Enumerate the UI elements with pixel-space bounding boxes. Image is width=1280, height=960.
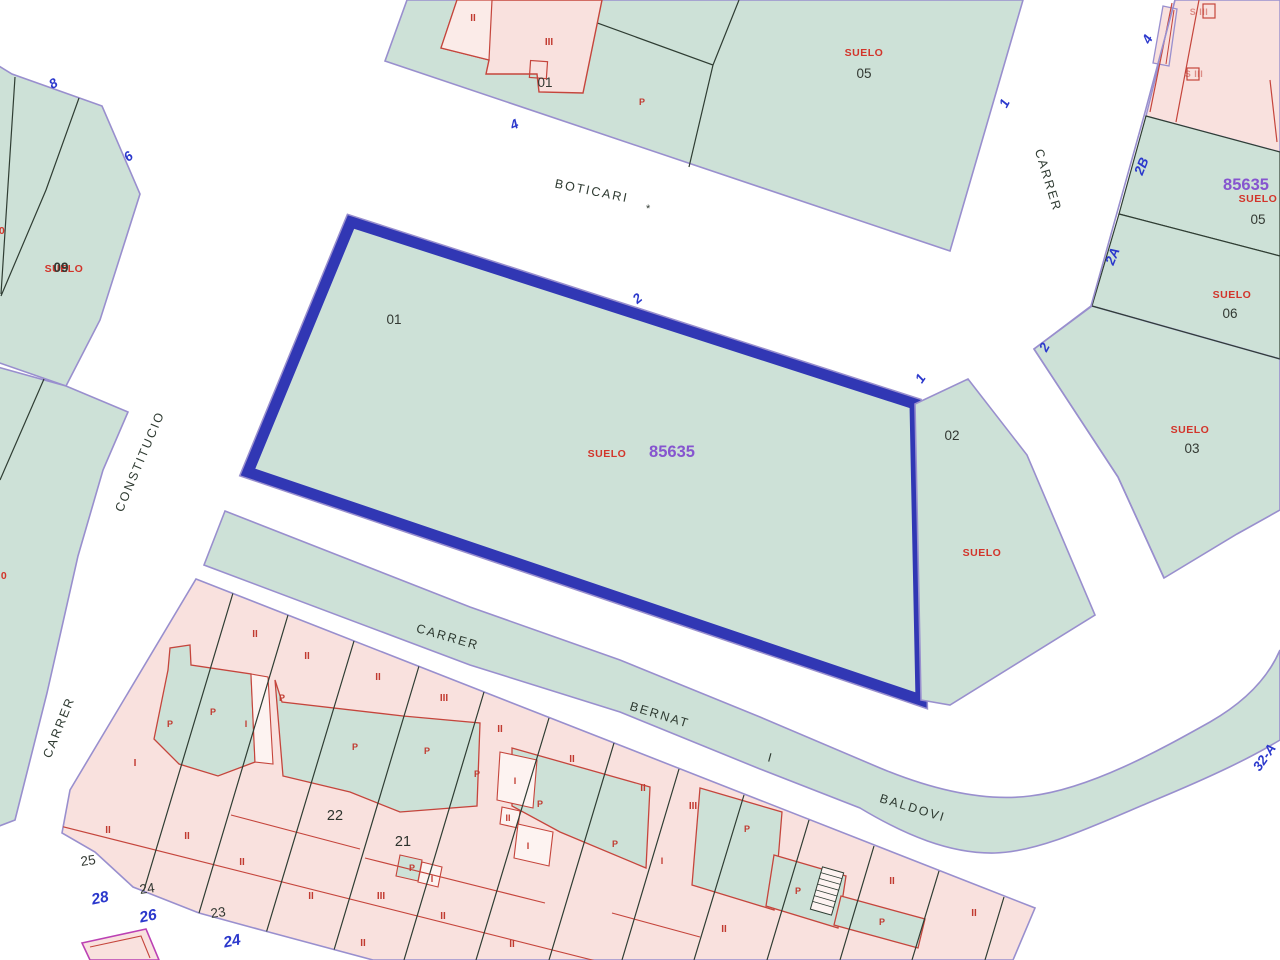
svg-text:SUELO: SUELO [1239, 193, 1278, 205]
svg-text:P: P [167, 719, 173, 729]
svg-text:III: III [377, 891, 386, 902]
svg-text:09: 09 [53, 260, 68, 275]
svg-text:P: P [210, 707, 216, 717]
svg-text:III: III [440, 693, 449, 704]
svg-text:P: P [795, 886, 801, 896]
svg-text:02: 02 [944, 428, 959, 443]
svg-text:I: I [245, 719, 248, 729]
svg-text:01: 01 [537, 75, 552, 90]
svg-text:21: 21 [395, 834, 411, 850]
svg-text:II: II [304, 651, 310, 662]
svg-text:P: P [879, 917, 885, 927]
svg-text:S III: S III [1185, 69, 1204, 79]
svg-text:II: II [889, 876, 895, 887]
svg-text:I: I [431, 874, 434, 884]
svg-text:23: 23 [210, 904, 227, 921]
svg-text:P: P [424, 746, 430, 756]
svg-text:P: P [639, 97, 645, 107]
svg-text:P: P [409, 863, 415, 873]
svg-text:II: II [505, 813, 510, 823]
svg-text:SUELO: SUELO [1171, 424, 1210, 436]
svg-text:II: II [569, 754, 575, 765]
svg-text:03: 03 [1184, 441, 1199, 456]
svg-text:P: P [352, 742, 358, 752]
svg-text:SUELO: SUELO [963, 547, 1002, 559]
svg-text:III: III [689, 801, 698, 812]
svg-text:24: 24 [139, 880, 156, 897]
svg-text:P: P [612, 839, 618, 849]
svg-text:II: II [470, 13, 476, 24]
svg-text:*: * [646, 203, 651, 215]
svg-text:I: I [527, 841, 530, 851]
svg-text:III: III [545, 37, 554, 48]
svg-text:25: 25 [80, 852, 97, 869]
svg-text:II: II [360, 938, 366, 949]
svg-text:II: II [239, 857, 245, 868]
svg-text:I: I [661, 856, 664, 866]
svg-text:II: II [184, 831, 190, 842]
svg-text:II: II [375, 672, 381, 683]
svg-text:II: II [640, 783, 646, 794]
svg-text:I: I [514, 776, 517, 786]
svg-text:P: P [537, 799, 543, 809]
svg-text:II: II [509, 939, 515, 950]
svg-text:06: 06 [1222, 306, 1237, 321]
svg-text:05: 05 [856, 66, 871, 81]
svg-text:22: 22 [327, 808, 343, 824]
svg-text:0: 0 [1, 570, 7, 582]
svg-text:SUELO: SUELO [588, 448, 627, 460]
svg-text:85635: 85635 [649, 443, 695, 461]
svg-text:P: P [279, 693, 285, 703]
svg-text:01: 01 [386, 312, 401, 327]
svg-text:I: I [134, 758, 137, 769]
svg-text:S III: S III [1190, 7, 1209, 17]
svg-text:II: II [497, 724, 503, 735]
svg-text:SUELO: SUELO [1213, 289, 1252, 301]
svg-text:P: P [474, 769, 480, 779]
svg-text:SUELO: SUELO [845, 47, 884, 59]
svg-text:II: II [105, 825, 111, 836]
svg-text:II: II [971, 908, 977, 919]
svg-text:P: P [744, 824, 750, 834]
svg-text:II: II [252, 629, 258, 640]
svg-text:II: II [308, 891, 314, 902]
svg-text:05: 05 [1250, 212, 1265, 227]
svg-text:II: II [440, 911, 446, 922]
svg-text:85635: 85635 [1223, 176, 1269, 194]
svg-text:II: II [721, 924, 727, 935]
svg-text:0: 0 [0, 225, 5, 237]
